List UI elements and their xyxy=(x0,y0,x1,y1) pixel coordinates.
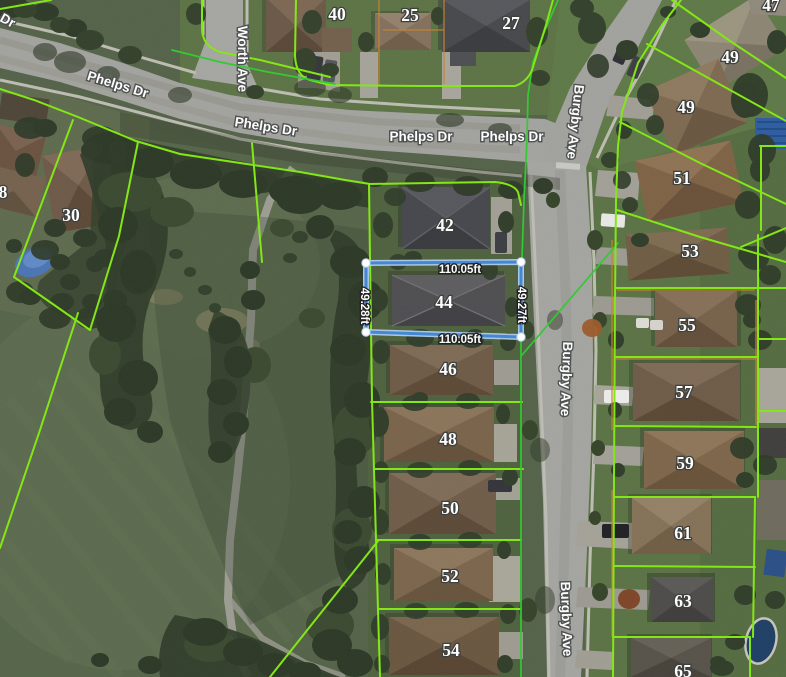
svg-text:49.27ft: 49.27ft xyxy=(515,287,527,324)
